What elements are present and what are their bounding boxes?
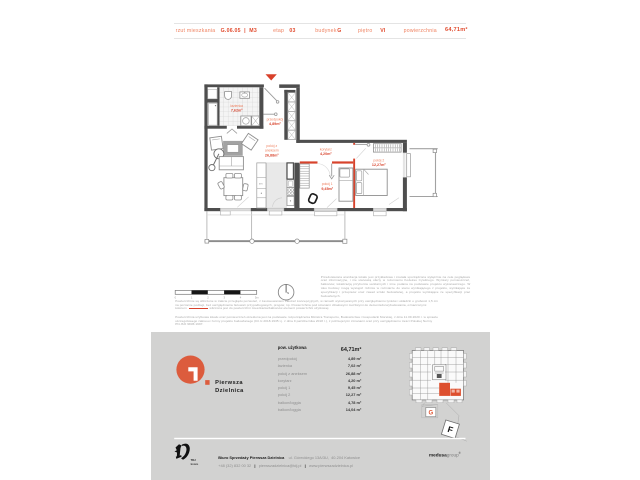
- svg-text:G: G: [428, 411, 433, 417]
